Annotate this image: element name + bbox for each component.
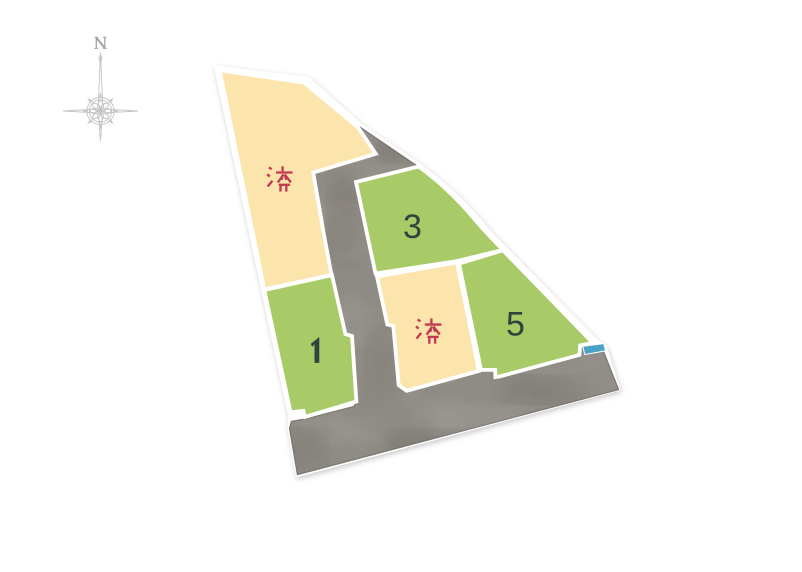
svg-text:3: 3 [403, 208, 422, 246]
svg-text:5: 5 [506, 306, 525, 344]
